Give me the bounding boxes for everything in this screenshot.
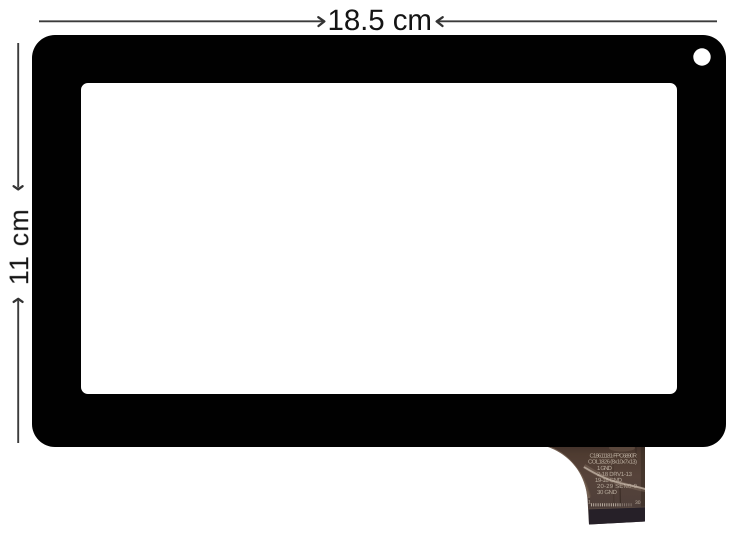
svg-text:30 GND: 30 GND: [597, 489, 618, 496]
svg-text:1 GND: 1 GND: [597, 465, 613, 472]
svg-text:C18611181-FPC6890R: C18611181-FPC6890R: [590, 453, 638, 460]
svg-text:11 cm: 11 cm: [4, 209, 34, 285]
svg-text:18.5 cm: 18.5 cm: [328, 4, 433, 37]
svg-text:30: 30: [635, 500, 641, 506]
svg-text:1: 1: [588, 500, 591, 506]
svg-text:COL1826 (8x10x7x13): COL1826 (8x10x7x13): [588, 459, 637, 466]
